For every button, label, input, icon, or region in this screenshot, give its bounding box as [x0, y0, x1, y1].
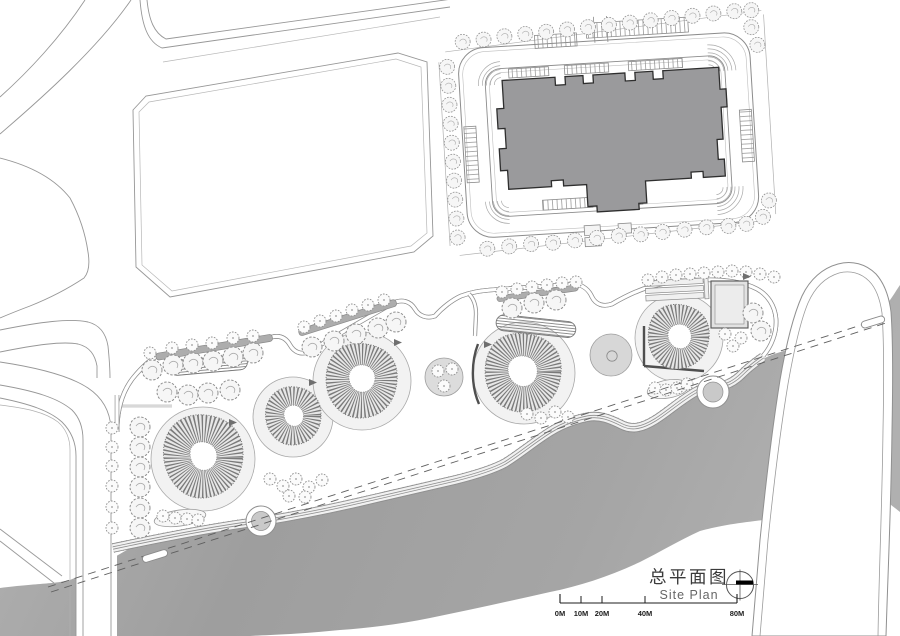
promenade-node-2 [697, 376, 729, 408]
round-planter [425, 358, 463, 396]
scale-label-0m: 0M [555, 609, 565, 618]
site-plan-title-cn: 总平面图 [649, 567, 729, 587]
circular-plaza [590, 334, 632, 376]
site-plan-canvas: 总平面图 Site Plan 0M 10M 20M 40M 80M [0, 0, 900, 636]
building-site [436, 2, 778, 259]
pergola [645, 278, 709, 302]
title-block: 总平面图 Site Plan [649, 567, 758, 602]
planted-mound-3 [326, 343, 397, 418]
scale-label-80m: 80M [730, 609, 745, 618]
square-pavilion [711, 281, 748, 328]
scale-label-40m: 40M [638, 609, 653, 618]
planted-mound-4 [485, 333, 561, 412]
river-bank-lines [0, 529, 62, 583]
planted-mound-2 [266, 387, 322, 445]
site-plan-title-en: Site Plan [659, 588, 718, 602]
scale-label-20m: 20M [595, 609, 610, 618]
scale-label-10m: 10M [574, 609, 589, 618]
site-plan-drawing: 总平面图 Site Plan 0M 10M 20M 40M 80M [0, 0, 900, 636]
